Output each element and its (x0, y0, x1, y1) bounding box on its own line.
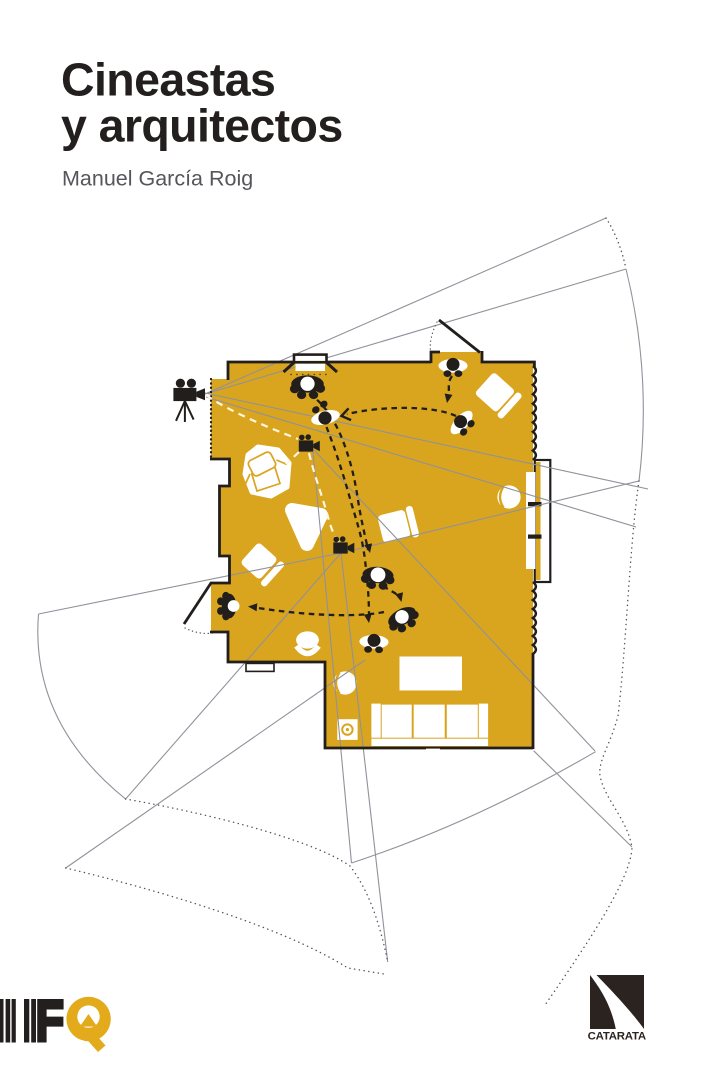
svg-text:Manuel García Roig: Manuel García Roig (62, 167, 253, 191)
svg-text:Cineastas: Cineastas (61, 54, 275, 106)
svg-text:CATARATA: CATARATA (588, 1031, 646, 1043)
svg-text:y arquitectos: y arquitectos (61, 99, 343, 151)
